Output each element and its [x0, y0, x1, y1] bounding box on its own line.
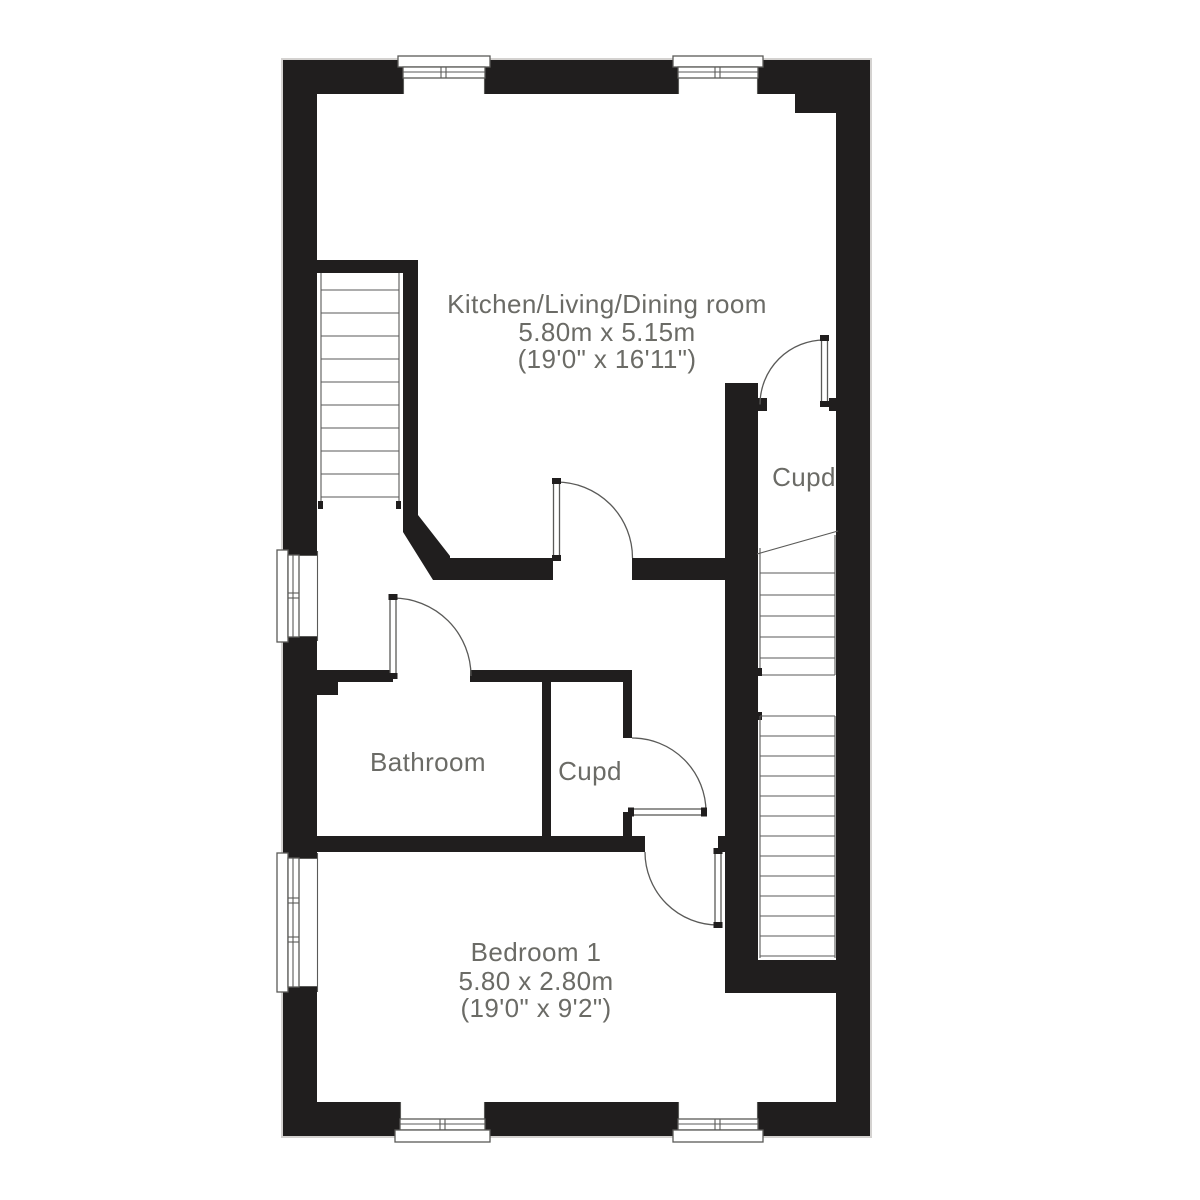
bedroom-label-metric: 5.80 x 2.80m [458, 966, 613, 996]
window-bottom-1 [395, 1102, 490, 1142]
cupboard-lower-label: Cupd [558, 756, 622, 786]
cupboard-upper-door [760, 335, 829, 407]
bedroom-label-imperial: (19'0" x 9'2") [460, 993, 611, 1023]
window-bottom-2 [673, 1102, 763, 1142]
kitchen-hall-door [552, 478, 633, 561]
stairs-upper-left [318, 273, 401, 509]
bathroom-door [389, 594, 472, 679]
window-left-2 [277, 853, 318, 992]
cupboard-upper-label: Cupd [772, 462, 836, 492]
kitchen-label-metric: 5.80m x 5.15m [518, 317, 695, 347]
stairs-right [757, 531, 841, 958]
cupboard-lower-door [628, 738, 707, 817]
floor-plan: Kitchen/Living/Dining room 5.80m x 5.15m… [0, 0, 1200, 1200]
bedroom-door [645, 848, 723, 928]
bathroom-label: Bathroom [370, 747, 486, 777]
kitchen-label-imperial: (19'0" x 16'11") [518, 344, 697, 374]
kitchen-label-name: Kitchen/Living/Dining room [447, 289, 767, 319]
window-top-1 [398, 56, 490, 94]
window-left-1 [277, 550, 318, 642]
floor-plan-svg: Kitchen/Living/Dining room 5.80m x 5.15m… [0, 0, 1200, 1200]
window-top-2 [673, 56, 763, 94]
bedroom-label-name: Bedroom 1 [471, 937, 602, 967]
